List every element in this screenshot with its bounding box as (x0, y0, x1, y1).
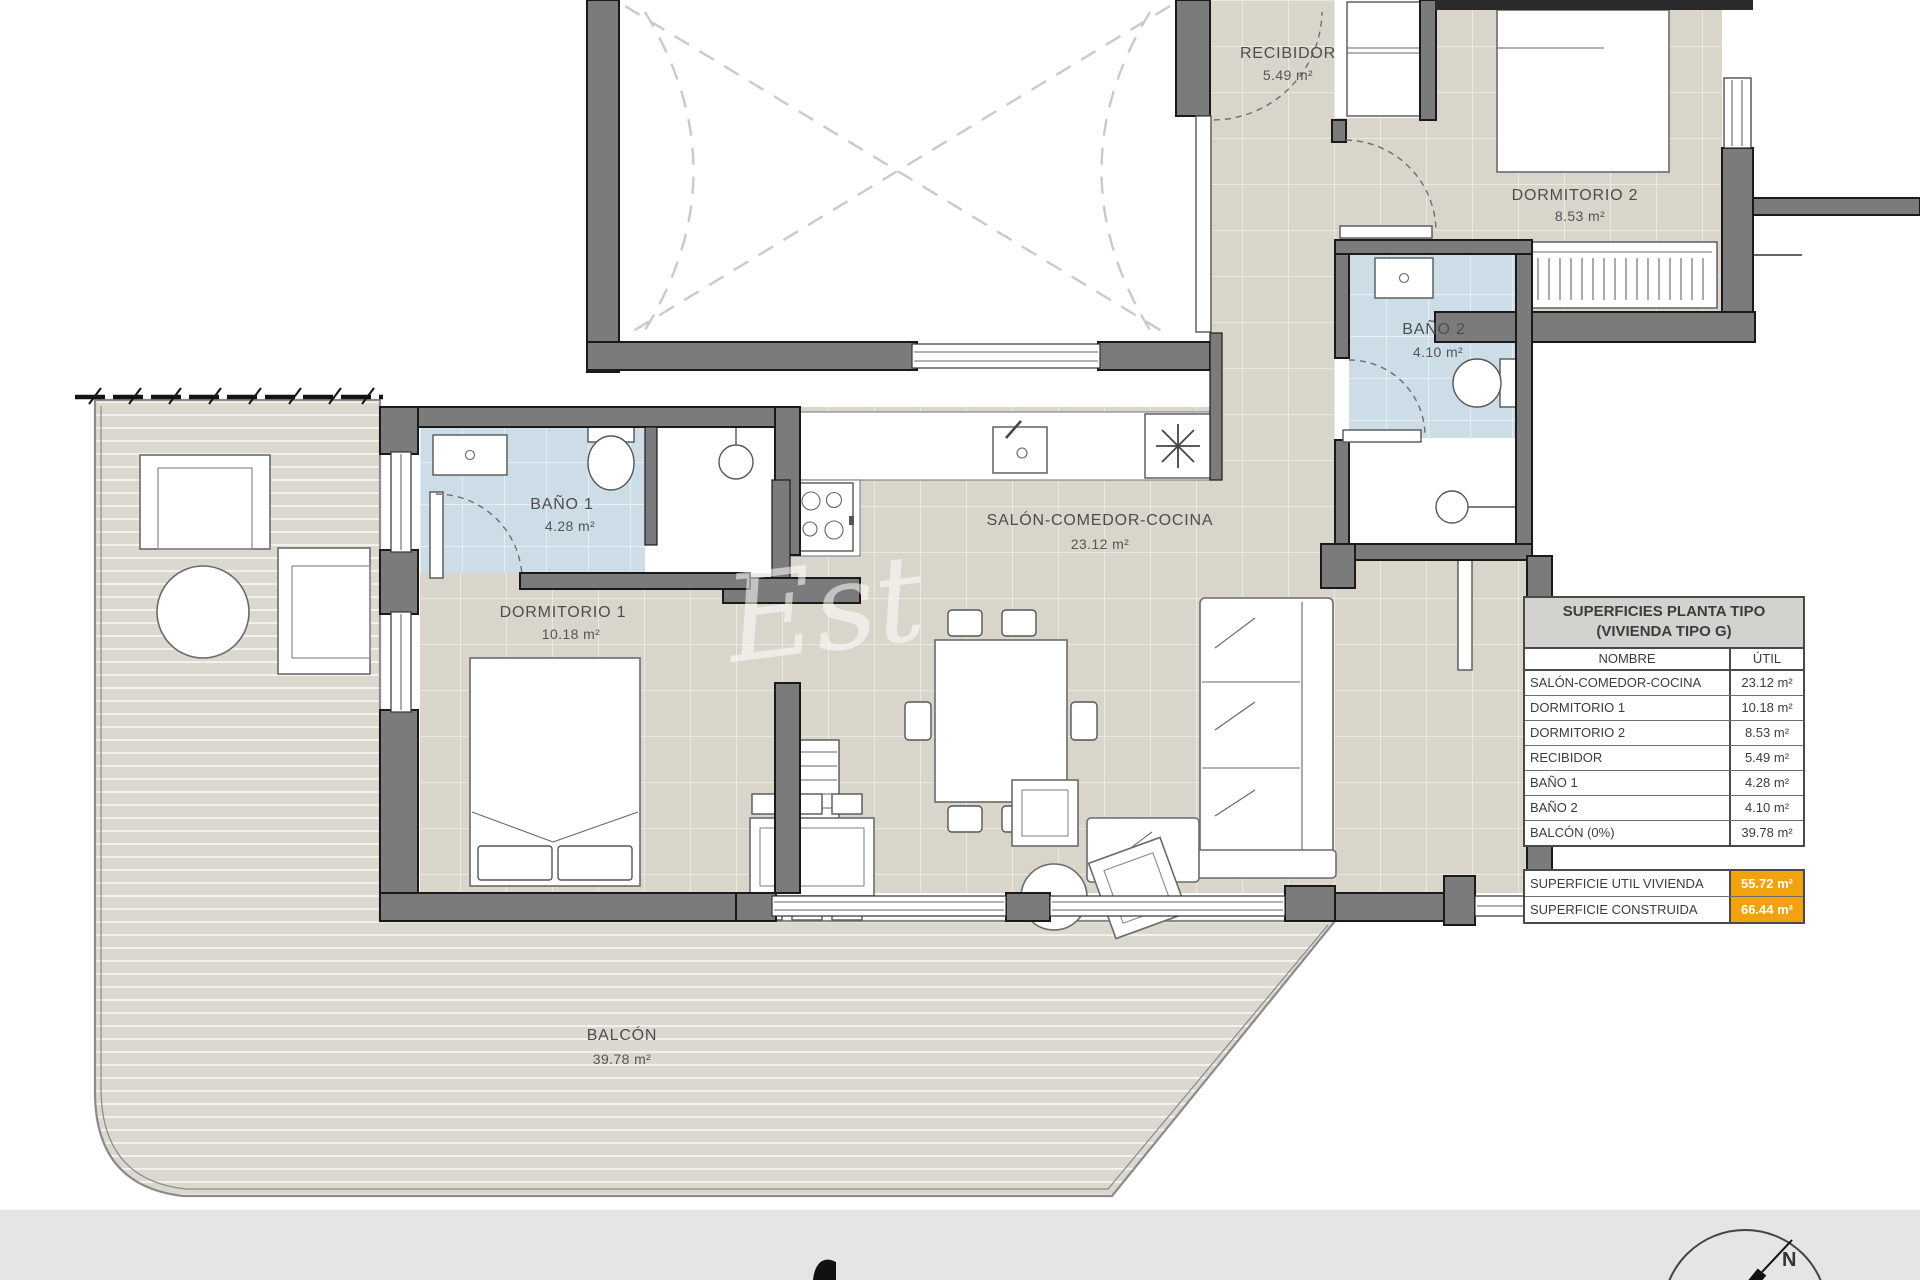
row-name: BAÑO 1 (1525, 775, 1729, 790)
outdoor-round-table-1 (157, 566, 249, 658)
closet-recibidor (1347, 2, 1420, 116)
table-title-line2: (VIVIENDA TIPO G) (1527, 622, 1801, 642)
col-header-util: ÚTIL (1729, 649, 1803, 669)
table-row: SALÓN-COMEDOR-COCINA 23.12 m² (1525, 671, 1803, 696)
room-label-recibidor: RECIBIDOR (1240, 45, 1336, 62)
fridge-icon (1145, 414, 1212, 478)
outdoor-armchair-1 (140, 455, 270, 549)
floor-plan-page: RECIBIDOR 5.49 m² DORMITORIO 2 8.53 m² B… (0, 0, 1920, 1280)
room-area-bano-2: 4.10 m² (1413, 344, 1463, 360)
row-name: BALCÓN (0%) (1525, 825, 1729, 840)
bath1-window (391, 452, 411, 552)
table-row: DORMITORIO 2 8.53 m² (1525, 721, 1803, 746)
wardrobe-dormitorio-2 (1527, 242, 1717, 308)
row-value: 39.78 m² (1729, 821, 1803, 845)
outdoor-lounge-chair (1012, 780, 1078, 846)
summary-name: SUPERFICIE CONSTRUIDA (1525, 902, 1729, 917)
room-area-bano-1: 4.28 m² (545, 518, 595, 534)
row-value: 10.18 m² (1729, 696, 1803, 720)
room-area-balcon: 39.78 m² (593, 1051, 651, 1067)
sink-icon (433, 435, 507, 475)
table-title-line1: SUPERFICIES PLANTA TIPO (1527, 602, 1801, 622)
stairwell-shaft (619, 0, 1176, 342)
row-value: 4.28 m² (1729, 771, 1803, 795)
dorm1-window (391, 612, 411, 712)
table-row: DORMITORIO 1 10.18 m² (1525, 696, 1803, 721)
row-value: 23.12 m² (1729, 671, 1803, 695)
room-area-salon: 23.12 m² (1071, 536, 1129, 552)
row-value: 5.49 m² (1729, 746, 1803, 770)
summary-row: SUPERFICIE UTIL VIVIENDA 55.72 m² (1525, 871, 1803, 897)
kitchen-sink (993, 421, 1047, 473)
row-name: BAÑO 2 (1525, 800, 1729, 815)
room-label-dormitorio-1: DORMITORIO 1 (500, 604, 627, 621)
room-label-balcon: BALCÓN (587, 1025, 658, 1044)
watermark: Est (717, 529, 933, 691)
shaft-window (912, 344, 1100, 368)
row-name: DORMITORIO 1 (1525, 700, 1729, 715)
bed-dormitorio-2 (1497, 10, 1669, 172)
row-value: 8.53 m² (1729, 721, 1803, 745)
bathroom-1 (420, 427, 775, 573)
sink-icon (1375, 258, 1433, 298)
balcony-window-a (772, 896, 1006, 916)
table-header: NOMBRE ÚTIL (1525, 649, 1803, 671)
footer-band (0, 1210, 1920, 1280)
table-title: SUPERFICIES PLANTA TIPO (VIVIENDA TIPO G… (1525, 598, 1803, 649)
table-row: RECIBIDOR 5.49 m² (1525, 746, 1803, 771)
surfaces-table: SUPERFICIES PLANTA TIPO (VIVIENDA TIPO G… (1523, 596, 1805, 924)
summary-value-highlight: 66.44 m² (1729, 897, 1803, 922)
sideboard (1458, 552, 1472, 670)
room-label-bano-2: BAÑO 2 (1402, 318, 1466, 338)
summary-table: SUPERFICIE UTIL VIVIENDA 55.72 m² SUPERF… (1523, 869, 1805, 924)
summary-name: SUPERFICIE UTIL VIVIENDA (1525, 876, 1729, 891)
room-label-bano-1: BAÑO 1 (530, 493, 594, 513)
bathroom-2 (1335, 240, 1532, 560)
row-name: SALÓN-COMEDOR-COCINA (1525, 675, 1729, 690)
col-header-nombre: NOMBRE (1525, 651, 1729, 666)
summary-value-highlight: 55.72 m² (1729, 871, 1803, 896)
summary-row: SUPERFICIE CONSTRUIDA 66.44 m² (1525, 897, 1803, 922)
table-row: BAÑO 2 4.10 m² (1525, 796, 1803, 821)
room-label-salon: SALÓN-COMEDOR-COCINA (987, 510, 1214, 529)
dorm2-window (1724, 78, 1751, 148)
toilet-icon (588, 427, 634, 490)
row-name: DORMITORIO 2 (1525, 725, 1729, 740)
room-area-recibidor: 5.49 m² (1263, 67, 1313, 83)
table-row: BAÑO 1 4.28 m² (1525, 771, 1803, 796)
balcony-window-b (1050, 896, 1285, 916)
room-area-dormitorio-2: 8.53 m² (1555, 208, 1605, 224)
bed-dormitorio-1 (470, 658, 640, 886)
table-row: BALCÓN (0%) 39.78 m² (1525, 821, 1803, 845)
room-label-dormitorio-2: DORMITORIO 2 (1512, 187, 1639, 204)
row-name: RECIBIDOR (1525, 750, 1729, 765)
outdoor-armchair-2 (278, 548, 370, 674)
row-value: 4.10 m² (1729, 796, 1803, 820)
toilet-icon (1453, 359, 1516, 407)
room-area-dormitorio-1: 10.18 m² (542, 626, 600, 642)
compass-north-label: N (1782, 1249, 1796, 1271)
